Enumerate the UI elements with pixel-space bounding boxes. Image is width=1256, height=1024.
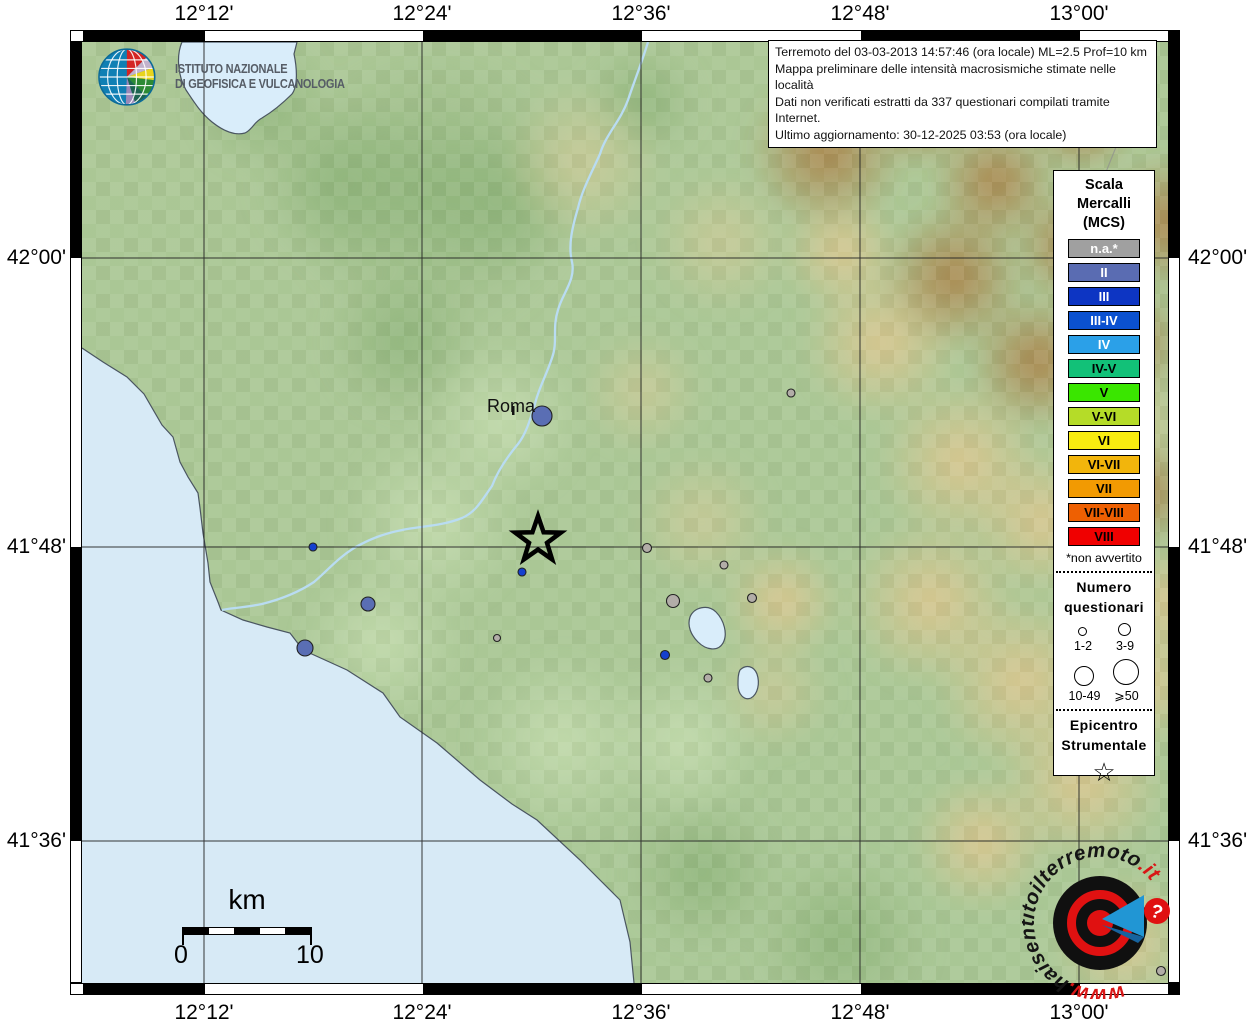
legend-chip: IV-V [1068, 359, 1140, 378]
intensity-marker [748, 594, 757, 603]
axis-label-top: 12°12' [149, 2, 259, 26]
axis-label-top: 12°36' [586, 2, 696, 26]
legend-chip: III [1068, 287, 1140, 306]
intensity-marker [661, 651, 670, 660]
axis-label-left: 41°36' [0, 829, 66, 853]
info-line: Terremoto del 03-03-2013 14:57:46 (ora l… [775, 44, 1150, 61]
axis-label-left: 42°00' [0, 246, 66, 270]
info-line: Ultimo aggiornamento: 30-12-2025 03:53 (… [775, 127, 1150, 144]
axis-label-right: 41°48' [1188, 535, 1256, 559]
legend-divider [1056, 709, 1152, 711]
axis-label-top: 12°48' [805, 2, 915, 26]
intensity-marker [667, 595, 680, 608]
legend-panel: Scala Mercalli (MCS) n.a.* II III III-IV… [1053, 170, 1155, 776]
legend-divider [1056, 571, 1152, 573]
size-label: 3-9 [1116, 639, 1134, 653]
intensity-marker [518, 568, 526, 576]
lake-nemi [738, 667, 758, 699]
scalebar-end: 10 [296, 941, 324, 970]
ingv-logo: ISTITUTO NAZIONALE DI GEOFISICA E VULCAN… [96, 47, 368, 107]
axis-label-bottom: 12°36' [586, 1001, 696, 1024]
size-label: ⩾50 [1114, 688, 1138, 703]
legend-chip: VII [1068, 479, 1140, 498]
axis-label-bottom: 13°00' [1024, 1001, 1134, 1024]
intensity-marker [643, 544, 652, 553]
scalebar [182, 927, 312, 935]
ingv-name-line: ISTITUTO NAZIONALE [175, 62, 345, 77]
legend-chip: III-IV [1068, 311, 1140, 330]
scalebar-start: 0 [174, 941, 188, 970]
size-label: 1-2 [1074, 639, 1092, 653]
intensity-marker [704, 674, 712, 682]
axis-label-bottom: 12°12' [149, 1001, 259, 1024]
legend-chip: IV [1068, 335, 1140, 354]
size-label: 10-49 [1069, 689, 1101, 703]
intensity-marker [297, 640, 313, 656]
axis-label-bottom: 12°24' [367, 1001, 477, 1024]
legend-title: (MCS) [1054, 214, 1154, 233]
axis-label-top: 13°00' [1024, 2, 1134, 26]
intensity-marker [309, 543, 317, 551]
size-circle-xlarge [1113, 659, 1139, 685]
info-line: Dati non verificati estratti da 337 ques… [775, 94, 1150, 127]
haisentito-logo: ? www.haisentitoilterremoto.it [1022, 843, 1178, 999]
size-circle-medium [1118, 623, 1131, 636]
legend-chip: VI [1068, 431, 1140, 450]
questionnaire-title: Numero [1054, 577, 1154, 597]
map-frame-right [1168, 42, 1180, 983]
legend-footnote: *non avvertito [1054, 551, 1154, 565]
info-line: Mappa preliminare delle intensità macros… [775, 61, 1150, 94]
size-circle-small [1078, 627, 1087, 636]
epicenter-title: Epicentro [1054, 715, 1154, 735]
legend-chip: II [1068, 263, 1140, 282]
macroseismic-map-page: 12°12' 12°24' 12°36' 12°48' 13°00' 12°12… [0, 0, 1256, 1024]
map-canvas: Roma [82, 42, 1168, 983]
axis-label-bottom: 12°48' [805, 1001, 915, 1024]
questionnaire-title: questionari [1054, 597, 1154, 617]
city-label: Roma [487, 396, 536, 416]
axis-label-right: 42°00' [1188, 246, 1256, 270]
map-frame-left [70, 42, 82, 983]
legend-chip: V [1068, 383, 1140, 402]
legend-title: Mercalli [1054, 195, 1154, 214]
legend-title: Scala [1054, 176, 1154, 195]
size-circle-large [1074, 666, 1094, 686]
legend-chip: VIII [1068, 527, 1140, 546]
axis-label-left: 41°48' [0, 535, 66, 559]
scalebar-unit: km [182, 884, 312, 916]
ingv-globe-icon [96, 47, 162, 107]
ingv-name-line: DI GEOFISICA E VULCANOLOGIA [175, 77, 345, 92]
intensity-marker [361, 597, 375, 611]
legend-chip: V-VI [1068, 407, 1140, 426]
legend-chip: VII-VIII [1068, 503, 1140, 522]
intensity-marker [720, 561, 728, 569]
legend-chip: VI-VII [1068, 455, 1140, 474]
map-frame-bottom [70, 983, 1180, 995]
info-box: Terremoto del 03-03-2013 14:57:46 (ora l… [768, 40, 1157, 148]
intensity-marker [494, 635, 501, 642]
axis-label-right: 41°36' [1188, 829, 1256, 853]
city-marker [512, 406, 515, 415]
legend-chip: n.a.* [1068, 239, 1140, 258]
intensity-scale: n.a.* II III III-IV IV IV-V V V-VI VI VI… [1054, 239, 1154, 546]
axis-label-top: 12°24' [367, 2, 477, 26]
intensity-marker [787, 389, 795, 397]
epicenter-title: Strumentale [1054, 735, 1154, 755]
epicenter-star-icon: ☆ [1054, 759, 1154, 785]
